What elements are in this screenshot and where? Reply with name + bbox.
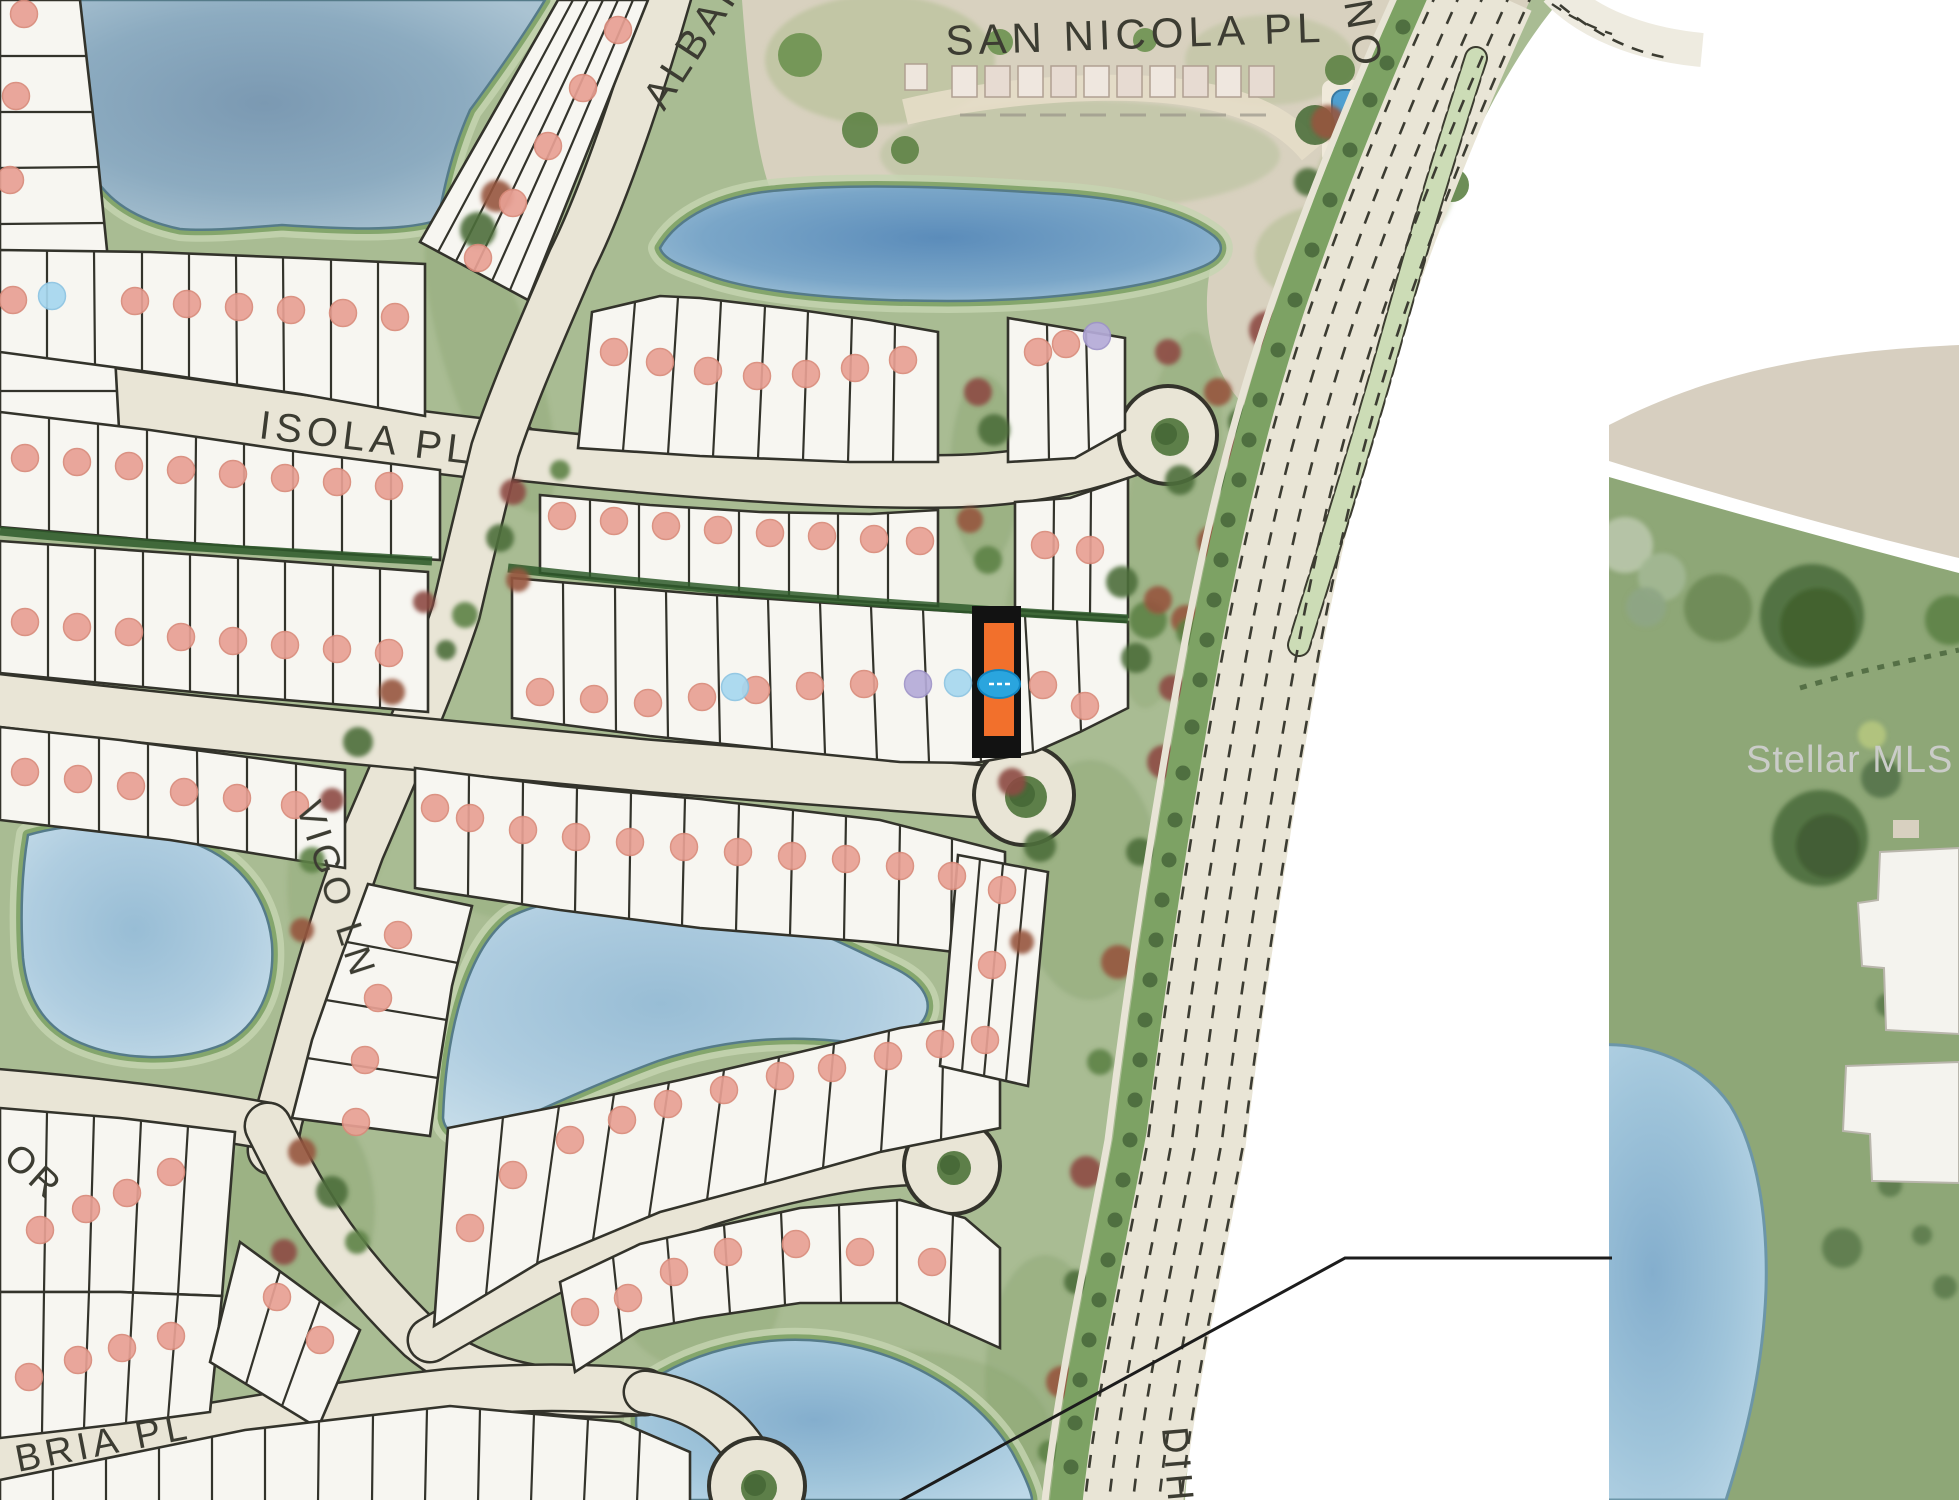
svg-text:Stellar MLS: Stellar MLS [1746,739,1953,781]
svg-text:DIH: DIH [1154,1425,1202,1500]
